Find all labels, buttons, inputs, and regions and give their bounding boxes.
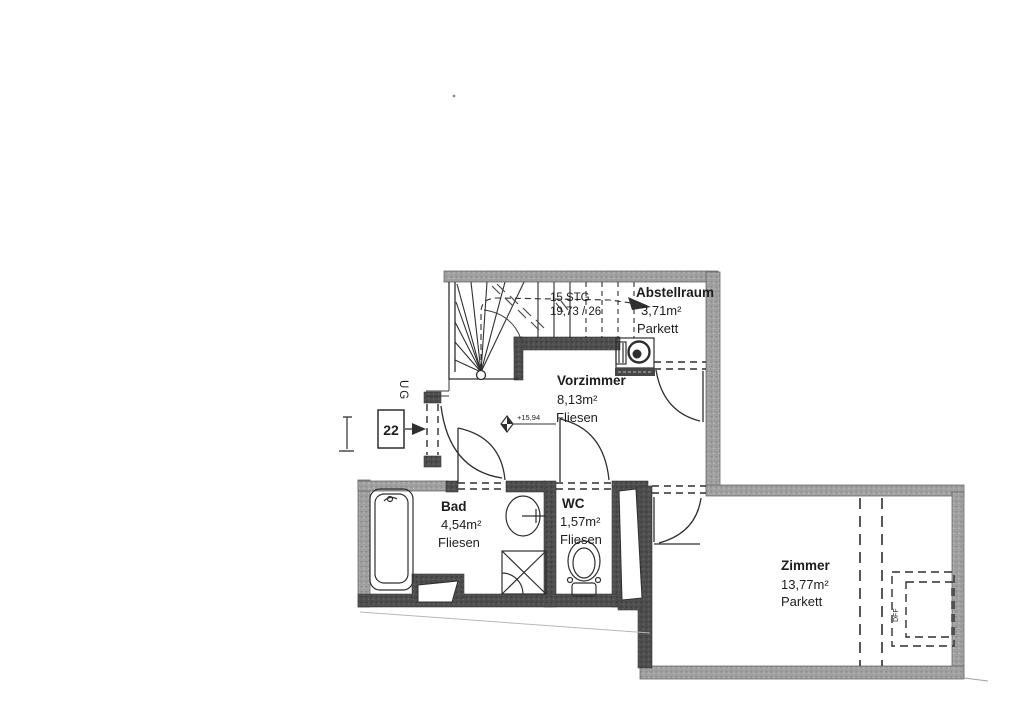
toilet-icon <box>568 541 601 596</box>
left-reference-mark <box>339 417 354 451</box>
unit-number-box: 22 <box>378 410 426 448</box>
boiler-fixture <box>615 338 655 376</box>
room-area: 4,54m² <box>441 517 482 532</box>
stair-newel-post <box>477 371 486 380</box>
room-name: WC <box>562 496 585 511</box>
room-area: 13,77m² <box>781 577 829 592</box>
entry-arrow-icon <box>412 423 426 435</box>
washbasin-icon <box>506 496 546 536</box>
room-area: 8,13m² <box>557 392 598 407</box>
room-label-abstellraum: Abstellraum 3,71m² Parkett <box>636 285 714 336</box>
stair-winder-treads <box>455 282 524 372</box>
roof-slope-lines <box>860 498 882 666</box>
floor-plan-page: 15 STG 19,73 / 26 <box>0 0 1024 723</box>
scan-speck <box>453 95 456 98</box>
shower-icon <box>502 551 546 594</box>
room-area: 3,71m² <box>641 303 682 318</box>
elevation-marker: +15,94 <box>501 413 556 432</box>
stair-count-label: 15 STG <box>550 292 590 304</box>
roof-window-label: DFF <box>893 608 900 622</box>
room-name: Bad <box>441 499 467 514</box>
room-label-wc: WC 1,57m² Fliesen <box>560 496 602 547</box>
room-name: Zimmer <box>781 558 831 573</box>
room-label-vorzimmer: Vorzimmer 8,13m² Fliesen <box>556 373 627 425</box>
room-area: 1,57m² <box>560 514 601 529</box>
stair-dimension-label: 19,73 / 26 <box>550 306 601 318</box>
room-floor: Parkett <box>781 594 823 609</box>
room-floor: Fliesen <box>556 410 598 425</box>
room-label-bad: Bad 4,54m² Fliesen <box>438 499 482 550</box>
floor-plan-drawing: 15 STG 19,73 / 26 <box>0 0 1024 723</box>
room-floor: Fliesen <box>560 532 602 547</box>
room-floor: Parkett <box>637 321 679 336</box>
unit-number: 22 <box>383 422 399 438</box>
bathtub-icon <box>370 489 413 590</box>
room-name: Vorzimmer <box>557 373 627 388</box>
room-floor: Fliesen <box>438 535 480 550</box>
room-name: Abstellraum <box>636 285 714 300</box>
level-label: UG <box>397 380 409 401</box>
roof-window: DFF <box>892 572 954 646</box>
elevation-value: +15,94 <box>517 413 540 422</box>
room-label-zimmer: Zimmer 13,77m² Parkett <box>781 558 831 609</box>
